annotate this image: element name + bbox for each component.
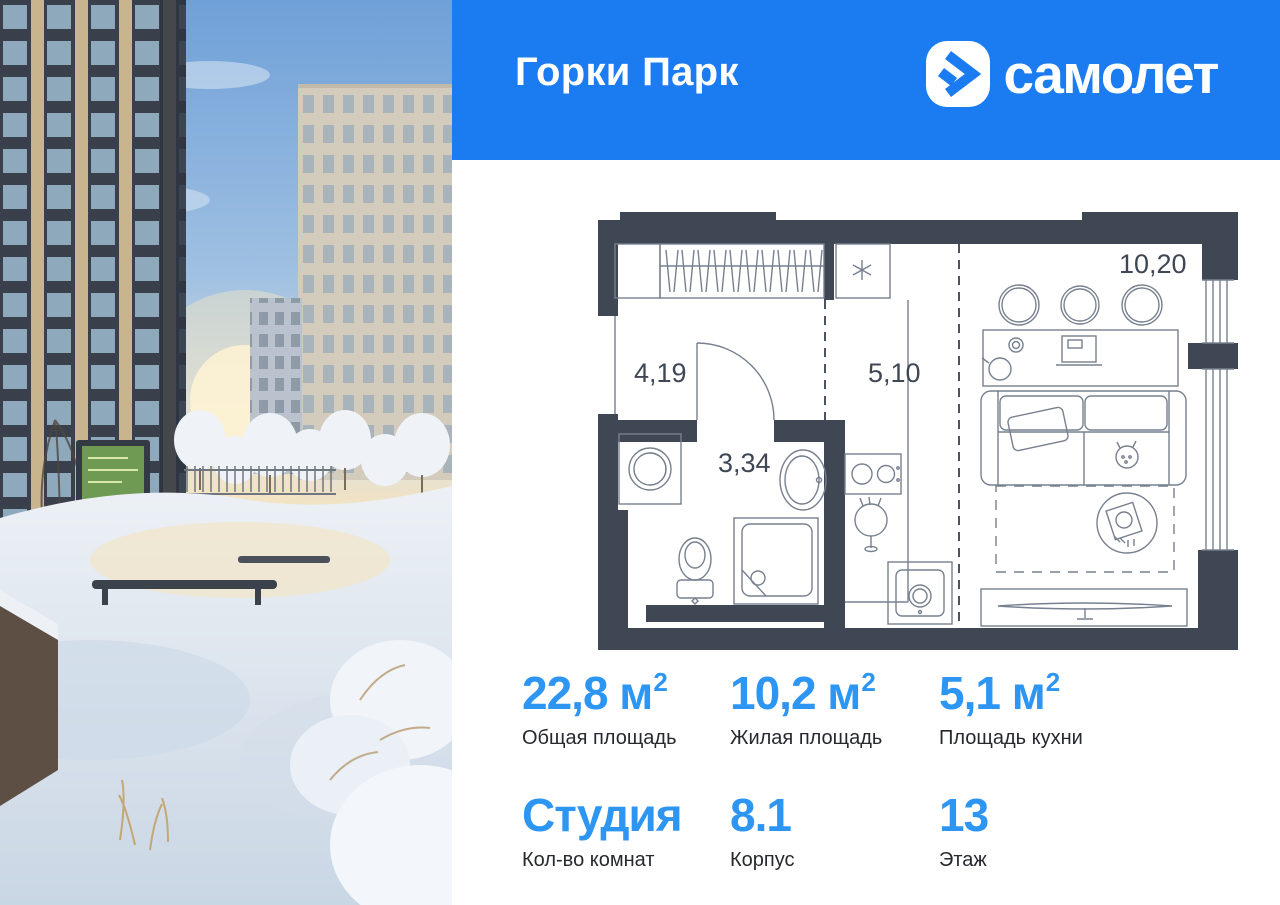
- room-label-bathroom: 3,34: [718, 448, 771, 478]
- stat-total-area: 22,8 м2 Общая площадь: [522, 668, 727, 750]
- stat-floor: 13 Этаж: [939, 790, 1144, 872]
- round-rug: [1097, 493, 1157, 553]
- stat-value: 13: [939, 790, 1144, 841]
- stat-value: Студия: [522, 790, 727, 841]
- brand-logo: самолет: [926, 40, 1218, 108]
- stat-value: 8.1: [730, 790, 935, 841]
- stat-label: Жилая площадь: [730, 727, 935, 750]
- desk: [982, 330, 1178, 386]
- samolet-logo-icon: [926, 41, 990, 107]
- stat-rooms: Студия Кол-во комнат: [522, 790, 727, 872]
- stat-kitchen-area: 5,1 м2 Площадь кухни: [939, 668, 1144, 750]
- brand-wordmark: самолет: [1003, 47, 1218, 102]
- stat-label: Площадь кухни: [939, 727, 1144, 750]
- floor-plan-drawing: 4,19 3,34 5,10 10,20: [598, 210, 1238, 650]
- header: Горки Парк самолет: [452, 0, 1280, 160]
- winter-courtyard-scene: [0, 0, 452, 905]
- bathroom-sink: [780, 450, 826, 510]
- stat-label: Кол-во комнат: [522, 849, 727, 872]
- listing-card: Горки Парк самолет: [0, 0, 1280, 905]
- stat-value: 10,2 м2: [730, 668, 935, 719]
- stat-label: Этаж: [939, 849, 1144, 872]
- project-title: Горки Парк: [515, 50, 739, 95]
- bed-zone: [996, 486, 1174, 572]
- project-photo: [0, 0, 452, 905]
- kitchen-counter: [845, 300, 908, 602]
- stat-value: 22,8 м2: [522, 668, 727, 719]
- pendant-stools: [999, 285, 1162, 325]
- fridge: [836, 244, 890, 298]
- info-panel: Горки Парк самолет: [452, 0, 1280, 905]
- toilet: [677, 538, 713, 604]
- cat: [1116, 441, 1138, 468]
- kitchen-sink: [888, 562, 952, 624]
- wardrobe: [615, 244, 824, 298]
- shower: [734, 518, 818, 604]
- stat-label: Корпус: [730, 849, 935, 872]
- stat-label: Общая площадь: [522, 727, 727, 750]
- bathroom-door: [697, 343, 774, 420]
- stat-building: 8.1 Корпус: [730, 790, 935, 872]
- stat-value: 5,1 м2: [939, 668, 1144, 719]
- room-label-living-room: 10,20: [1119, 249, 1187, 279]
- room-label-kitchen: 5,10: [868, 358, 921, 388]
- sofa-bed: [981, 391, 1186, 485]
- stove: [845, 454, 901, 494]
- window: [1202, 280, 1234, 550]
- kitchen-basin: [855, 497, 887, 552]
- stat-living-area: 10,2 м2 Жилая площадь: [730, 668, 935, 750]
- floor-plan: 4,19 3,34 5,10 10,20: [598, 210, 1238, 650]
- room-label-hallway: 4,19: [634, 358, 687, 388]
- tv-console: [981, 589, 1187, 626]
- washing-machine: [619, 434, 681, 504]
- paper-plane-icon: [926, 42, 990, 106]
